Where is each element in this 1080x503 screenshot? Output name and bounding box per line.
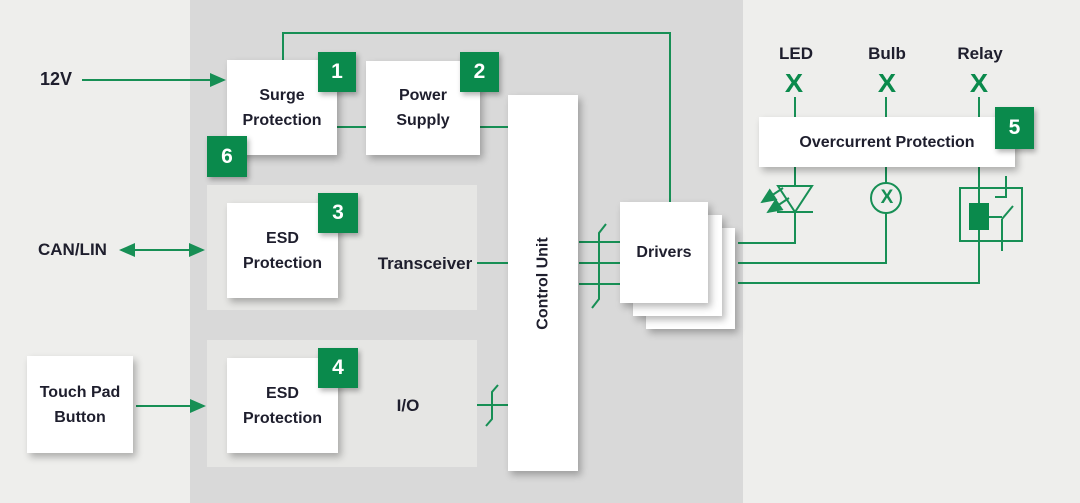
badge-2: 2 bbox=[460, 52, 499, 92]
led-load-label: LED bbox=[770, 44, 822, 64]
led-emission-arrow-2 bbox=[768, 198, 789, 212]
relay-coil bbox=[969, 203, 989, 230]
relay-lever bbox=[1002, 206, 1013, 219]
supply-12v-label: 12V bbox=[40, 69, 72, 90]
badge-4: 4 bbox=[318, 348, 358, 388]
badge-6: 6 bbox=[207, 136, 247, 177]
surge-protection-label-2: Protection bbox=[242, 108, 321, 133]
relay-top-lead bbox=[995, 176, 1006, 197]
badge-3: 3 bbox=[318, 193, 358, 233]
led-x-mark: X bbox=[778, 70, 810, 96]
power-supply-label-2: Supply bbox=[396, 108, 449, 133]
io-label: I/O bbox=[368, 396, 448, 416]
surge-protection-label-1: Surge bbox=[259, 83, 304, 108]
relay-symbol bbox=[960, 176, 1022, 251]
overcurrent-protection-label: Overcurrent Protection bbox=[799, 130, 974, 155]
overcurrent-protection-block: Overcurrent Protection bbox=[759, 117, 1015, 167]
esd-io-label-2: Protection bbox=[243, 406, 322, 431]
touch-pad-button-block: Touch Pad Button bbox=[27, 356, 133, 453]
bulb-symbol-x: X bbox=[874, 188, 900, 208]
led-emission-arrow-1 bbox=[762, 188, 783, 202]
drivers-label: Drivers bbox=[636, 240, 691, 265]
esd-can-label-2: Protection bbox=[243, 251, 322, 276]
block-diagram: Surge Protection Power Supply ESD Protec… bbox=[0, 0, 1080, 503]
touch-pad-label-1: Touch Pad bbox=[40, 380, 121, 405]
badge-5: 5 bbox=[995, 107, 1034, 149]
wire-drivers-led bbox=[738, 212, 795, 243]
led-triangle bbox=[778, 186, 812, 212]
control-unit-block: Control Unit bbox=[508, 95, 578, 471]
touch-pad-label-2: Button bbox=[54, 405, 106, 430]
bulb-x-mark: X bbox=[871, 70, 903, 96]
relay-load-label: Relay bbox=[950, 44, 1010, 64]
drivers-block: Drivers bbox=[620, 202, 708, 303]
wire-drivers-relay bbox=[738, 230, 979, 283]
bus-slash-drivers bbox=[592, 224, 606, 308]
badge-1: 1 bbox=[318, 52, 356, 92]
can-lin-label: CAN/LIN bbox=[38, 240, 107, 260]
wire-drivers-bulb bbox=[738, 213, 886, 263]
transceiver-label: Transceiver bbox=[360, 254, 490, 274]
esd-can-label-1: ESD bbox=[266, 226, 299, 251]
esd-io-label-1: ESD bbox=[266, 381, 299, 406]
power-supply-label-1: Power bbox=[399, 83, 447, 108]
relay-x-mark: X bbox=[963, 70, 995, 96]
led-symbol bbox=[762, 186, 813, 212]
bulb-load-label: Bulb bbox=[861, 44, 913, 64]
control-unit-label: Control Unit bbox=[531, 237, 556, 329]
